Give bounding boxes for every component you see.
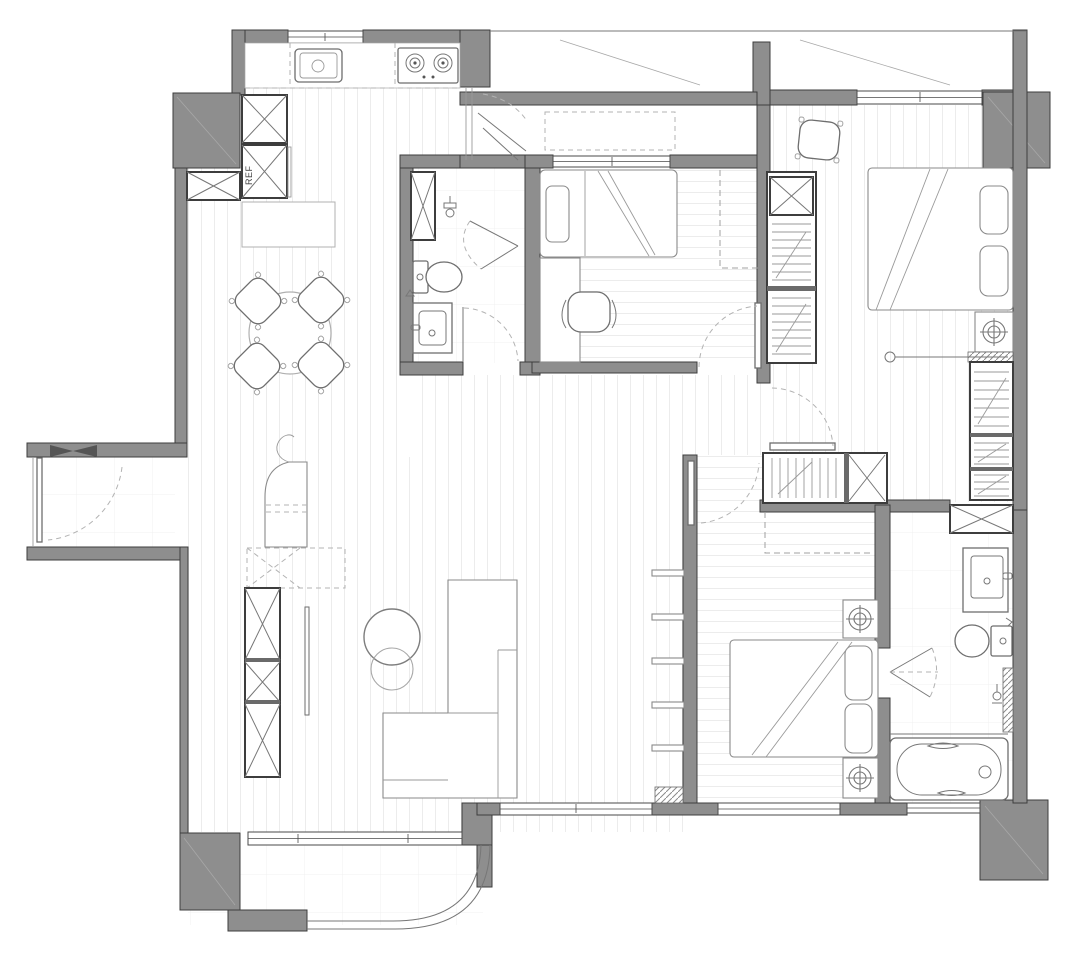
hall-window bbox=[500, 803, 652, 815]
single-bed bbox=[540, 170, 677, 257]
bedroom1-window bbox=[553, 156, 670, 167]
kitchen-island bbox=[242, 202, 335, 247]
bath1-cabinet bbox=[411, 172, 435, 240]
shower-partition bbox=[1003, 668, 1013, 732]
bath2-vanity-sink bbox=[963, 548, 1012, 612]
master-bed bbox=[868, 168, 1013, 310]
floor-cushion-chair bbox=[795, 117, 843, 163]
double-bed bbox=[730, 640, 878, 757]
coffee-table-large bbox=[364, 609, 420, 665]
master-tall-cabinet bbox=[970, 362, 1013, 500]
floor-plan-svg: REF bbox=[0, 0, 1080, 960]
office-chair-icon bbox=[562, 292, 616, 332]
bathtub-icon bbox=[890, 738, 1008, 800]
side-cabinet bbox=[187, 172, 240, 200]
ref-label: REF bbox=[244, 165, 254, 185]
vanity-sink-icon bbox=[411, 303, 452, 353]
wardrobe-block bbox=[763, 453, 887, 503]
kitchen-stove-icon bbox=[398, 48, 458, 83]
kitchen-tall-cabinet bbox=[242, 95, 287, 143]
tv bbox=[305, 607, 309, 715]
master-wardrobe bbox=[767, 172, 816, 363]
master-vanity-table bbox=[975, 312, 1013, 352]
master-window bbox=[857, 91, 982, 104]
living-window bbox=[248, 832, 462, 845]
hatched-pier bbox=[655, 787, 683, 803]
kitchen-window bbox=[288, 31, 363, 43]
bathroom2-window bbox=[907, 803, 980, 813]
floor-plan-page: REF bbox=[0, 0, 1080, 960]
nightstand-with-lamp bbox=[843, 600, 878, 638]
tv-cabinet bbox=[245, 588, 280, 777]
kitchen-sink-icon bbox=[295, 49, 342, 82]
bath2-storage-cabinet bbox=[950, 505, 1013, 533]
refrigerator-cabinet: REF bbox=[242, 145, 291, 198]
bedroom2-window bbox=[718, 803, 840, 815]
nightstand-with-lamp bbox=[843, 758, 878, 798]
